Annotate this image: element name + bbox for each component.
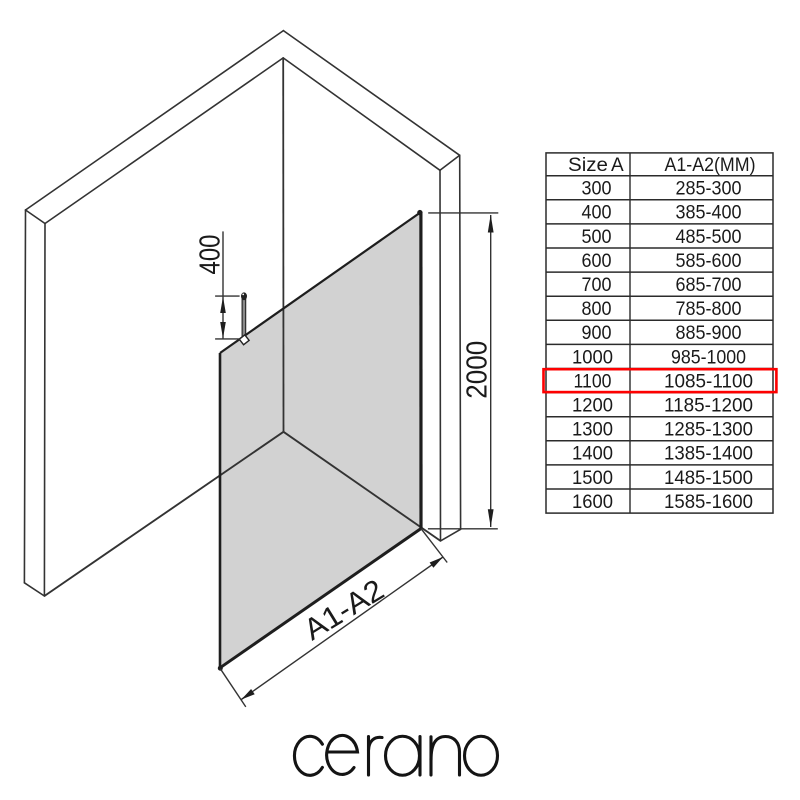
svg-text:300: 300: [582, 178, 612, 200]
svg-text:1200: 1200: [572, 395, 613, 417]
svg-text:385-400: 385-400: [676, 202, 742, 224]
svg-text:1285-1300: 1285-1300: [664, 419, 753, 441]
svg-text:985-1000: 985-1000: [671, 346, 746, 368]
svg-text:1085-1100: 1085-1100: [664, 370, 753, 392]
svg-text:2000: 2000: [462, 341, 494, 399]
svg-text:785-800: 785-800: [676, 298, 742, 320]
svg-text:1485-1500: 1485-1500: [664, 467, 753, 489]
svg-text:A1-A2(MM): A1-A2(MM): [665, 155, 756, 176]
svg-text:1100: 1100: [574, 370, 612, 392]
svg-text:400: 400: [195, 235, 227, 275]
svg-text:485-500: 485-500: [676, 226, 742, 248]
svg-text:885-900: 885-900: [676, 322, 742, 344]
svg-text:585-600: 585-600: [676, 250, 742, 272]
svg-text:1000: 1000: [572, 346, 613, 368]
svg-text:1185-1200: 1185-1200: [664, 395, 753, 417]
svg-text:1385-1400: 1385-1400: [664, 443, 753, 465]
svg-text:1585-1600: 1585-1600: [664, 491, 753, 513]
svg-text:600: 600: [582, 250, 612, 272]
svg-text:A: A: [611, 155, 624, 176]
svg-text:700: 700: [582, 274, 612, 296]
svg-text:1400: 1400: [572, 443, 613, 465]
svg-text:500: 500: [582, 226, 612, 248]
svg-text:1300: 1300: [572, 419, 613, 441]
svg-text:400: 400: [582, 202, 612, 224]
svg-text:685-700: 685-700: [676, 274, 742, 296]
svg-text:285-300: 285-300: [676, 178, 742, 200]
svg-text:1600: 1600: [572, 491, 613, 513]
svg-text:900: 900: [582, 322, 612, 344]
svg-text:Size: Size: [568, 155, 608, 176]
svg-text:1500: 1500: [572, 467, 613, 489]
svg-text:800: 800: [582, 298, 612, 320]
